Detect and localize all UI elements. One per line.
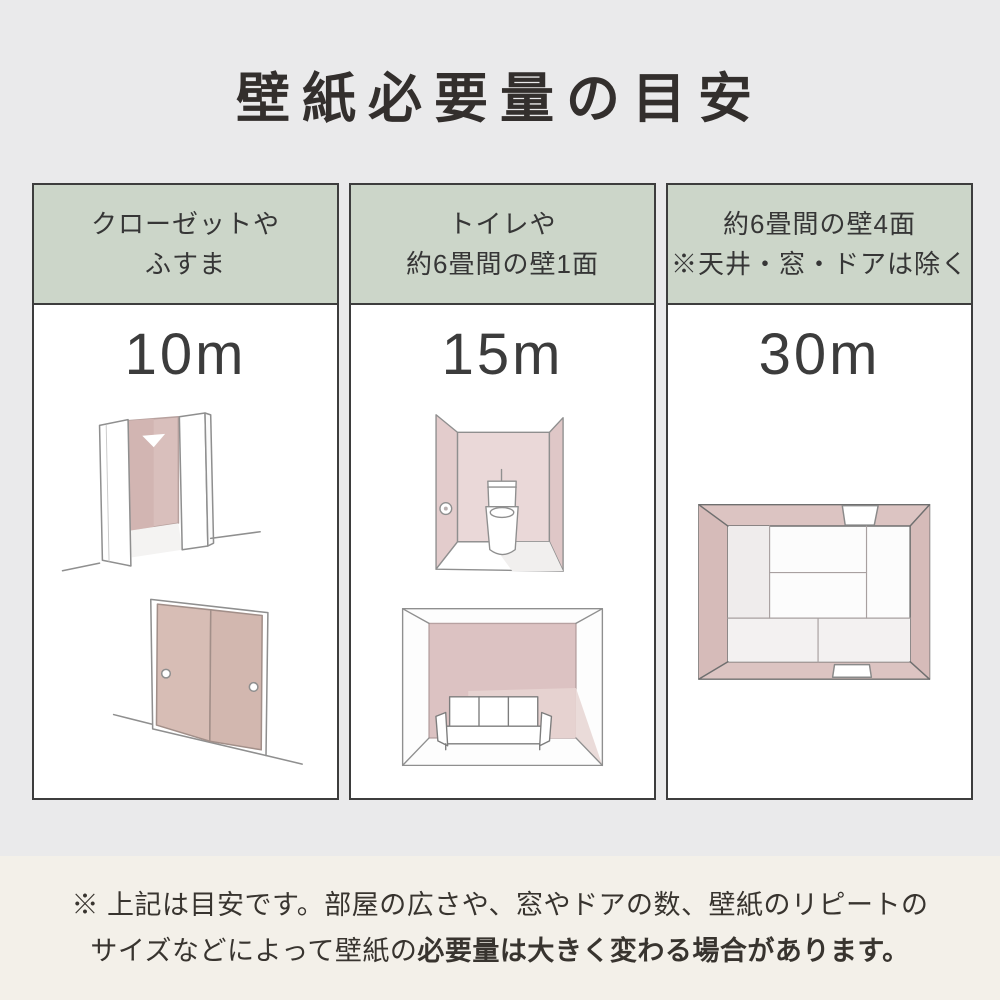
illustration-area	[351, 388, 654, 798]
footnote-line2-bold: 必要量は大きく変わる場合があります。	[417, 936, 909, 966]
page-title: 壁紙必要量の目安	[0, 54, 1000, 133]
footnote-line1: ※ 上記は目安です。部屋の広さや、窓やドアの数、壁紙のリピートの	[0, 882, 1000, 928]
column-closet-fusuma: クローゼットや ふすま 10m	[32, 183, 339, 800]
column-header: クローゼットや ふすま	[34, 185, 337, 305]
column-toilet-one-wall: トイレや 約6畳間の壁1面 15m	[349, 183, 656, 800]
footnote-band: ※ 上記は目安です。部屋の広さや、窓やドアの数、壁紙のリピートの サイズなどによ…	[0, 856, 1000, 1000]
room-one-wall-sofa-illustration	[385, 591, 620, 787]
amount-label: 10m	[34, 321, 337, 388]
column-header-line1: 約6畳間の壁4面	[723, 204, 916, 244]
open-closet-illustration	[40, 394, 332, 584]
footnote-line2: サイズなどによって壁紙の必要量は大きく変わる場合があります。	[0, 928, 1000, 974]
illustration-area	[34, 388, 337, 798]
fusuma-illustration	[40, 586, 332, 786]
illustration-area	[668, 388, 971, 798]
column-header: トイレや 約6畳間の壁1面	[351, 185, 654, 305]
column-header-line1: トイレや	[448, 204, 556, 244]
wallpaper-guide-infographic: 壁紙必要量の目安 クローゼットや ふすま 10m	[0, 0, 1000, 1000]
column-header-line2: 約6畳間の壁1面	[406, 244, 599, 284]
column-four-walls: 約6畳間の壁4面 ※天井・窓・ドアは除く 30m	[666, 183, 973, 800]
column-header-line2: ふすま	[145, 244, 226, 284]
column-header-line1: クローゼットや	[91, 204, 280, 244]
amount-label: 30m	[668, 321, 971, 388]
toilet-room-illustration	[395, 393, 610, 589]
column-header: 約6畳間の壁4面 ※天井・窓・ドアは除く	[668, 185, 971, 305]
amount-label: 15m	[351, 321, 654, 388]
room-four-walls-illustration	[679, 464, 961, 716]
column-header-line2: ※天井・窓・ドアは除く	[671, 244, 968, 284]
footnote-line2-regular: サイズなどによって壁紙の	[90, 936, 417, 966]
estimate-columns: クローゼットや ふすま 10m	[32, 183, 973, 800]
